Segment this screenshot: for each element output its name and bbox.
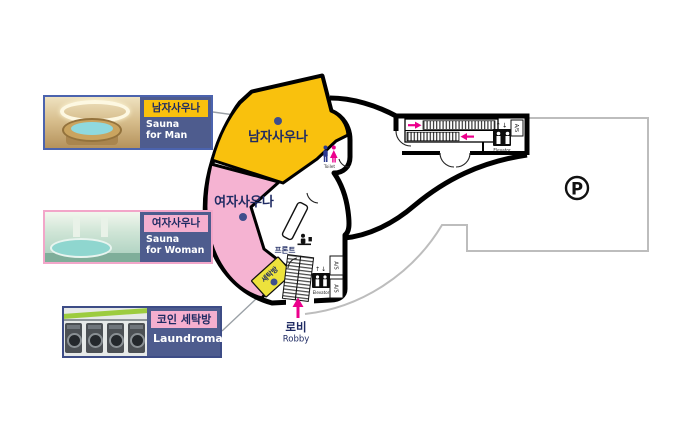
card-subtitle-line1: Laundromat [153,332,218,345]
toilet-man-figure [323,150,327,157]
service-box-lower-2: A/S [330,279,343,298]
elevator-arrows: ↑↓ [315,266,327,273]
person-figure [497,132,501,136]
person-figure [323,279,327,286]
front-desk-label: 프론트 [275,246,296,255]
legend-card-laundromat: 코인 세탁방 Laundromat [62,306,222,358]
person-figure [497,136,501,144]
person-figure [316,275,319,278]
card-panel: 여자사우나 Sauna for Woman [140,212,211,262]
toilet-woman-figure [332,158,333,163]
door-arc [440,153,454,167]
card-subtitle-line1: Sauna [146,119,209,130]
escalator-treads-down [407,132,459,141]
service-box-label: A/S [513,124,519,132]
machine-panel [88,325,101,329]
machine-door [88,333,103,348]
women-area-label: 여자사우나 [214,194,274,210]
leader-dot-women [239,213,247,221]
washing-machine [107,323,124,353]
elevator-icon-upper: ↑↓ Elevator [493,122,511,153]
toilet-man-figure [326,157,328,163]
elevator-label-lower: Elevator [313,290,330,295]
sauna-water [71,122,113,135]
card-subtitle-line2: for Man [146,130,209,141]
card-tag-label: 코인 세탁방 [151,311,217,328]
stairs [282,255,313,302]
service-box-lower-1: A/S [330,256,343,275]
card-tag-label: 남자사우나 [144,100,208,117]
elevator-label-upper: Elevator [493,148,511,153]
escalator-icon [405,119,498,142]
parking-letter: P [571,180,583,199]
card-tag-label: 여자사우나 [144,215,208,232]
legend-card-women-sauna: 여자사우나 Sauna for Woman [43,210,213,264]
parking-outline [305,118,648,314]
toilet-woman-figure [334,158,335,163]
service-box-label: A/S [333,284,339,292]
card-panel: 남자사우나 Sauna for Man [140,97,211,148]
card-subtitle: Sauna for Man [143,119,209,142]
elevator-box [312,273,330,288]
toilet-woman-figure [332,146,336,150]
person-figure [506,132,510,136]
door-arc [456,153,470,167]
washing-machine [128,323,145,353]
lobby-label-kr: 로비 [285,320,306,334]
legend-card-men-sauna: 남자사우나 Sauna for Man [43,95,213,150]
card-subtitle-line2: for Woman [146,245,209,256]
card-subtitle: Sauna for Woman [143,234,209,257]
washing-machine [86,323,103,353]
walkway-curve-wall [344,155,527,238]
machine-panel [67,325,80,329]
machine-door [67,333,82,348]
leader-dot-laundry [271,279,278,286]
pillar [101,217,108,237]
parking-icon: P [566,177,588,199]
service-box-label: A/S [333,261,339,269]
toilet-man-figure [324,146,328,150]
pillar [73,217,80,237]
lobby-label-en: Robby [283,335,310,345]
person-figure [323,275,326,278]
person-figure [506,136,510,144]
person-figure [316,279,320,286]
service-box-upper: A/S [511,120,523,136]
leader-dot-men [274,117,282,125]
men-area-label: 남자사우나 [248,129,308,145]
women-sauna-photo [45,212,140,262]
green-stripe [64,308,147,319]
machine-panel [130,325,143,329]
wall-pipe [64,319,147,321]
machine-panel [109,325,122,329]
men-sauna-photo [45,97,140,148]
card-panel: 코인 세탁방 Laundromat [147,308,220,356]
machine-door [109,333,124,348]
card-subtitle: Laundromat [150,332,218,345]
elevator-arrows: ↑↓ [496,122,509,130]
floor-guide-canvas: P 세탁방 [0,0,694,440]
card-subtitle-line1: Sauna [146,234,209,245]
toilet-label: Toilet [323,164,336,170]
washing-machine [65,323,82,353]
toilet-man-figure [324,157,326,163]
sauna-pool [50,238,112,258]
laundromat-photo [64,308,147,356]
machine-door [130,333,145,348]
escalator-treads-up [423,121,495,130]
